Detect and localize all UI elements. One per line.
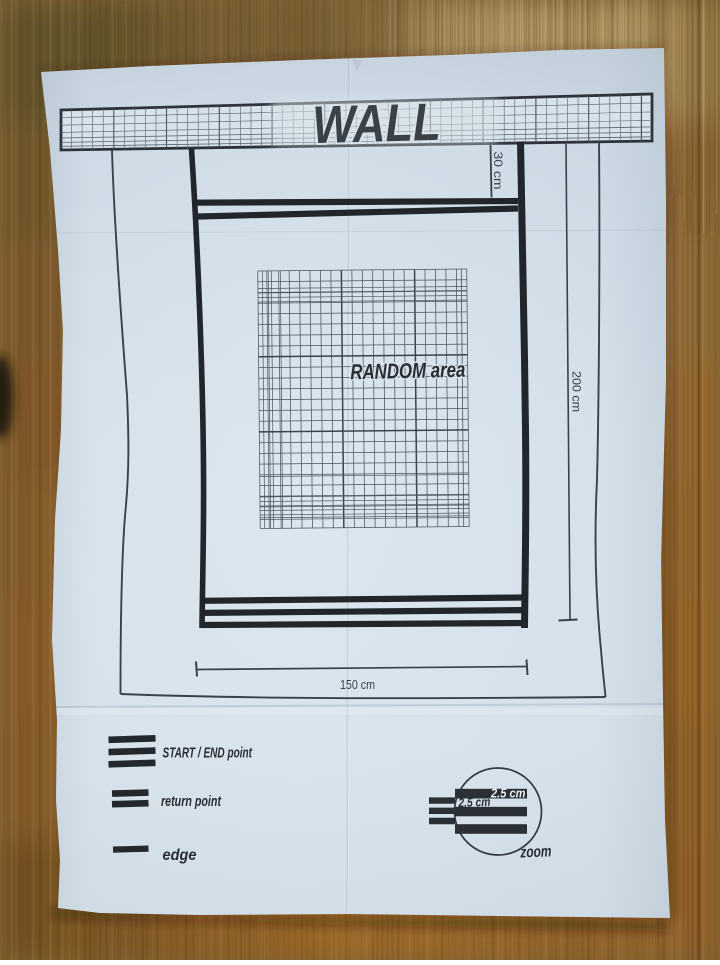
svg-text:RANDOM area: RANDOM area <box>350 358 466 385</box>
svg-text:return point: return point <box>161 793 222 810</box>
svg-text:zoom: zoom <box>519 843 551 861</box>
svg-text:200 cm: 200 cm <box>570 371 582 412</box>
svg-text:30 cm: 30 cm <box>491 152 503 190</box>
svg-text:150 cm: 150 cm <box>340 677 375 692</box>
svg-text:WALL: WALL <box>312 93 442 155</box>
svg-text:2.5 cm: 2.5 cm <box>490 787 525 801</box>
svg-text:2.5 cm: 2.5 cm <box>457 795 490 810</box>
svg-text:START / END point: START / END point <box>163 745 253 762</box>
svg-text:edge: edge <box>163 847 197 864</box>
